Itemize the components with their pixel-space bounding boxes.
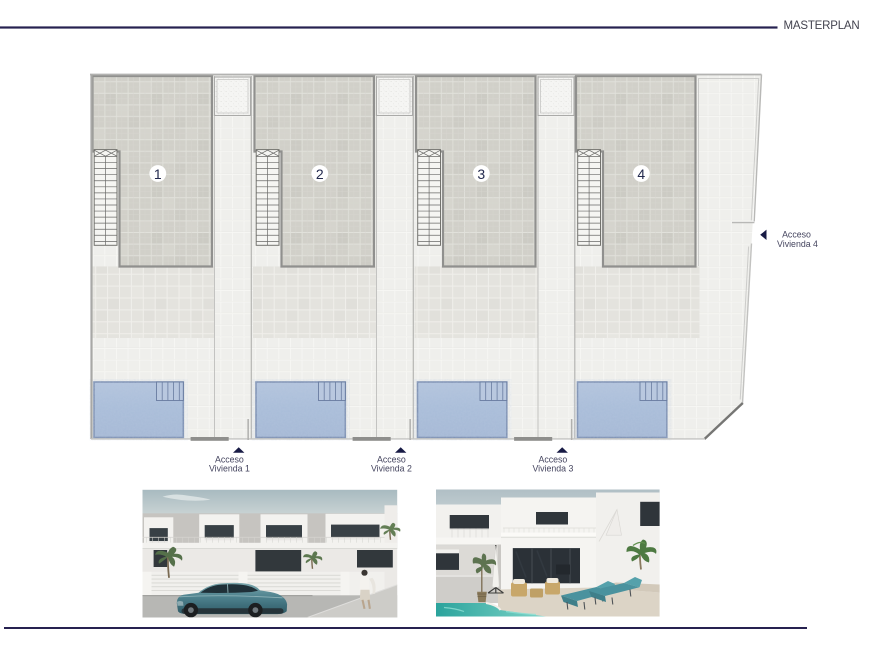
svg-text:4: 4 (637, 166, 645, 182)
svg-text:3: 3 (477, 166, 485, 182)
svg-text:Vivienda 1: Vivienda 1 (209, 464, 250, 474)
svg-text:MASTERPLAN: MASTERPLAN (784, 20, 860, 32)
svg-text:Vivienda 3: Vivienda 3 (532, 464, 573, 474)
svg-text:Vivienda 2: Vivienda 2 (371, 464, 412, 474)
svg-text:1: 1 (154, 166, 162, 182)
svg-text:Vivienda 4: Vivienda 4 (777, 239, 818, 249)
svg-text:2: 2 (316, 166, 324, 182)
